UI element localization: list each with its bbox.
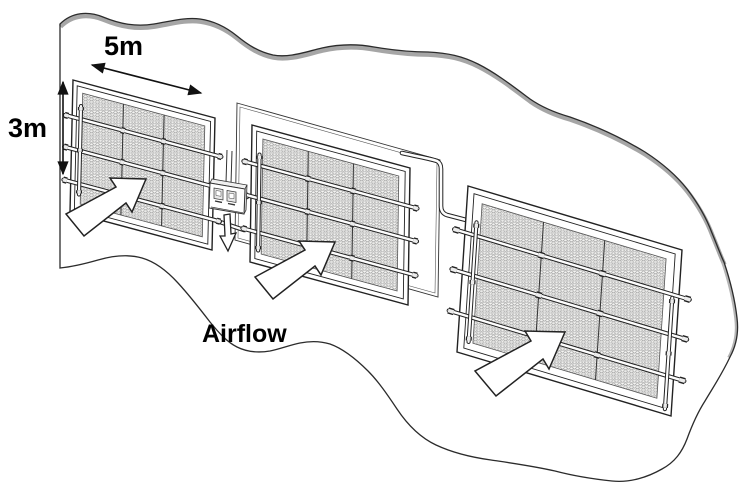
mesh-panel-array-diagram: 5m 3m Airflow <box>0 0 739 497</box>
height-dimension-label: 3m <box>8 113 47 143</box>
width-dimension-label: 5m <box>104 31 143 61</box>
airflow-label: Airflow <box>202 320 287 348</box>
diagram-page: 5m 3m Airflow <box>0 0 739 497</box>
